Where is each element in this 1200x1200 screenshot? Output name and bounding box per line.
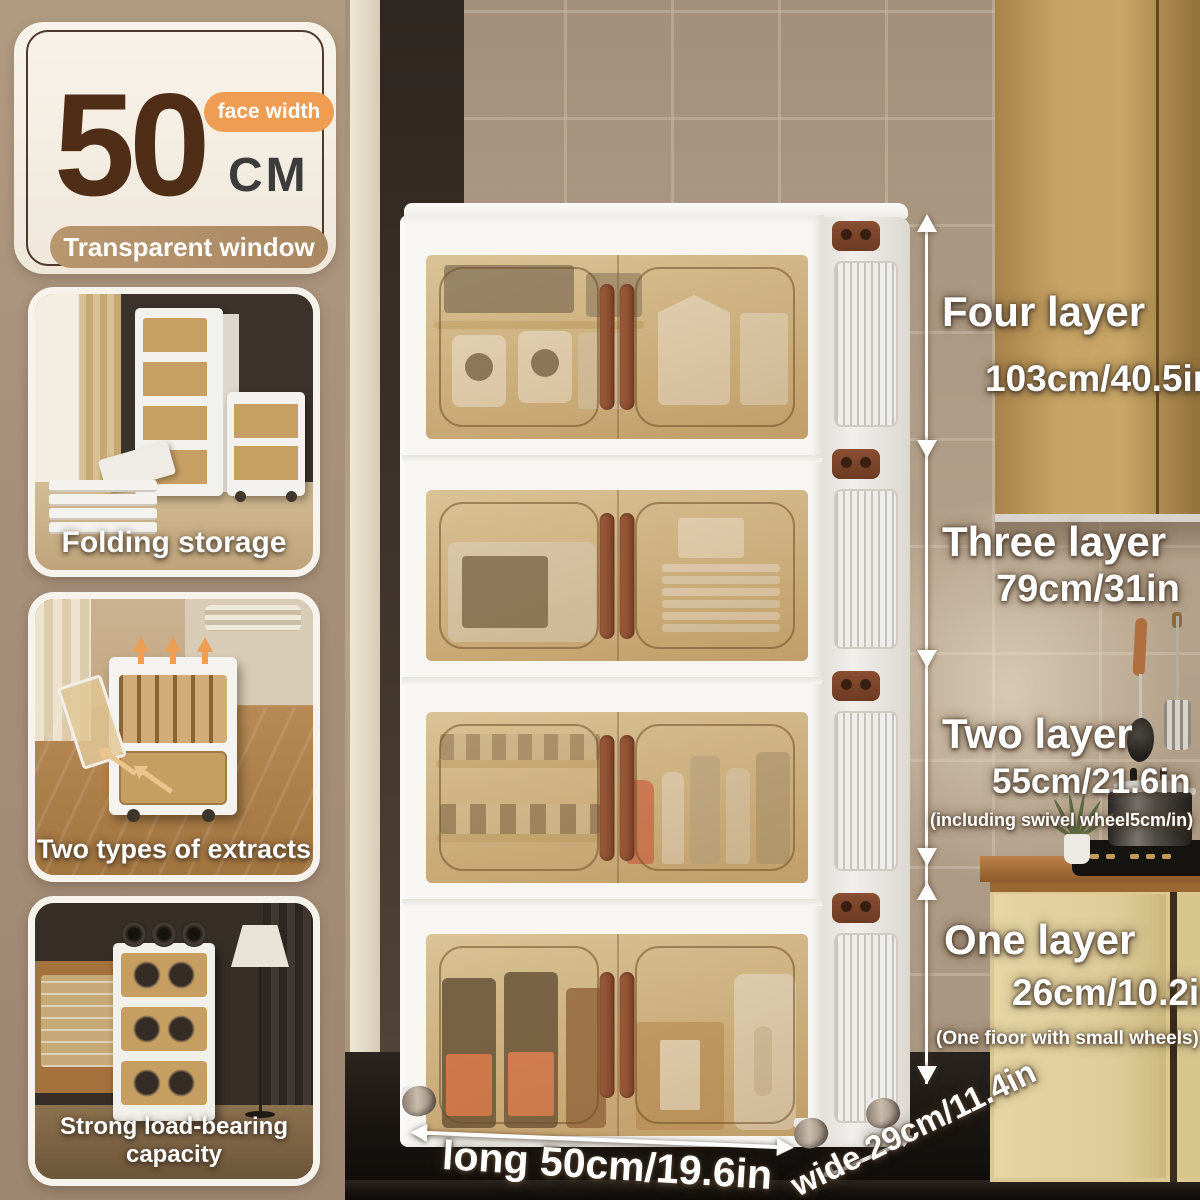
sideboard-glass	[41, 975, 119, 1067]
layer-height-label: Four layer	[942, 288, 1145, 336]
door-handle	[600, 284, 615, 410]
cabinet-wood-top	[990, 882, 1200, 892]
side-vent	[834, 711, 898, 871]
storage-window-dumbbells	[121, 1061, 207, 1105]
corner-latch-handle	[832, 221, 880, 251]
arrow-down-icon	[917, 1066, 937, 1084]
hanging-spatula	[1162, 616, 1192, 756]
dumbbell	[151, 921, 177, 947]
cabinet-seam	[1156, 0, 1159, 520]
corner-latch-handle	[832, 671, 880, 701]
door-handles	[600, 284, 635, 410]
side-vent	[834, 933, 898, 1123]
feature-caption: Strong load-bearing capacity	[35, 1113, 313, 1169]
stove-light	[1146, 854, 1155, 859]
layer-window	[426, 255, 808, 439]
door-frame-edge	[350, 0, 380, 1058]
door-handle	[620, 735, 635, 861]
left-door-outline	[439, 946, 599, 1124]
storage-windows	[234, 404, 298, 486]
arrow-down-icon	[917, 440, 937, 458]
arrow-right-icon	[776, 1138, 794, 1157]
stove-light	[1130, 854, 1139, 859]
small-storage-cart	[227, 392, 305, 496]
left-door-outline	[439, 502, 599, 649]
size-badge-card: 50 face width CM Transparent window	[14, 22, 336, 274]
cabinet-layer-2	[400, 684, 824, 899]
lower-compartment	[119, 751, 227, 805]
extract-up-arrow-icon	[165, 637, 181, 652]
arrow-down-icon	[917, 848, 937, 866]
right-door-outline	[635, 946, 795, 1124]
door-handles	[600, 972, 635, 1098]
right-door-outline	[635, 724, 795, 871]
arrow-up-icon	[917, 882, 937, 900]
folded-slab	[49, 480, 157, 492]
transparent-window-banner: Transparent window	[50, 226, 328, 268]
left-door-outline	[439, 724, 599, 871]
cabinet-layer-3	[400, 462, 824, 677]
ladle-handle	[1132, 618, 1147, 677]
layer-window	[426, 490, 808, 661]
corner-latch-handle	[832, 893, 880, 923]
right-door-outline	[635, 502, 795, 649]
sofa-cushion	[205, 605, 301, 631]
feature-card-folding-storage: Folding storage	[28, 287, 320, 577]
cart-wheel	[127, 809, 140, 822]
door-handle	[620, 972, 635, 1098]
layer-height-value: 55cm/21.6in	[992, 762, 1190, 802]
layer-height-note: (One fioor with small wheels)	[936, 1028, 1199, 1050]
spatula-head	[1164, 700, 1191, 750]
side-vent	[834, 489, 898, 649]
storage-cart-open	[109, 657, 237, 815]
cabinet-layer-4	[400, 227, 824, 455]
storage-window-dumbbells	[121, 953, 207, 997]
face-width-tag: face width	[204, 92, 334, 132]
side-vent	[834, 261, 898, 427]
layer-height-note: (including swivel wheel5cm/in)	[930, 810, 1193, 831]
door-handle	[600, 972, 615, 1098]
feature-caption: Folding storage	[35, 526, 313, 560]
corner-latch-handle	[832, 449, 880, 479]
layer-height-label: Two layer	[942, 710, 1133, 758]
door-handle	[620, 513, 635, 639]
door-handle	[600, 735, 615, 861]
stack-seam	[402, 899, 822, 906]
face-width-value: 50	[54, 72, 204, 218]
product-infographic: Four layer 103cm/40.5in Three layer 79cm…	[0, 0, 1200, 1200]
folded-slab	[49, 508, 157, 520]
door-handles	[600, 513, 635, 639]
cart-wheel	[202, 809, 215, 822]
layer-height-value: 79cm/31in	[996, 568, 1180, 611]
arrow-up-icon	[917, 214, 937, 232]
floor-lamp-pole	[259, 967, 262, 1113]
folded-slab	[49, 494, 157, 506]
dumbbell	[121, 921, 147, 947]
cart-wheel	[235, 491, 246, 502]
extract-up-arrow-icon	[197, 637, 213, 652]
layer-window	[426, 712, 808, 883]
stove-light	[1162, 854, 1171, 859]
door-handle	[600, 513, 615, 639]
layer-height-label: One layer	[944, 916, 1135, 964]
stack-seam	[402, 677, 822, 684]
ladle-shaft	[1139, 674, 1142, 722]
feature-caption: Two types of extracts	[35, 834, 313, 865]
cabinet-front	[400, 215, 824, 1147]
layer-window	[426, 934, 808, 1136]
storage-unit-with-dumbbells	[113, 943, 215, 1121]
face-width-unit: CM	[228, 148, 309, 203]
cabinet-layer-1	[400, 906, 824, 1152]
left-door-outline	[439, 267, 599, 427]
open-compartment-clothes	[119, 675, 227, 743]
arrow-down-icon	[917, 650, 937, 668]
dumbbell	[181, 921, 207, 947]
layer-height-label: Three layer	[942, 518, 1166, 566]
door-handle	[620, 284, 635, 410]
plant-pot	[1064, 834, 1090, 864]
stack-seam	[402, 455, 822, 462]
storage-cabinet-product	[400, 203, 912, 1171]
door-handles	[600, 735, 635, 861]
right-door-outline	[635, 267, 795, 427]
spatula-shaft	[1176, 616, 1179, 704]
layer-height-value: 26cm/10.2in	[1012, 972, 1200, 1014]
storage-window-dumbbells	[121, 1007, 207, 1051]
upper-kitchen-cabinet	[995, 0, 1200, 520]
cart-wheel	[286, 491, 297, 502]
layer-height-value: 103cm/40.5in	[985, 358, 1200, 400]
feature-card-two-extracts: Two types of extracts	[28, 592, 320, 882]
feature-card-load-bearing: Strong load-bearing capacity	[28, 896, 320, 1186]
extract-up-arrow-icon	[133, 637, 149, 652]
